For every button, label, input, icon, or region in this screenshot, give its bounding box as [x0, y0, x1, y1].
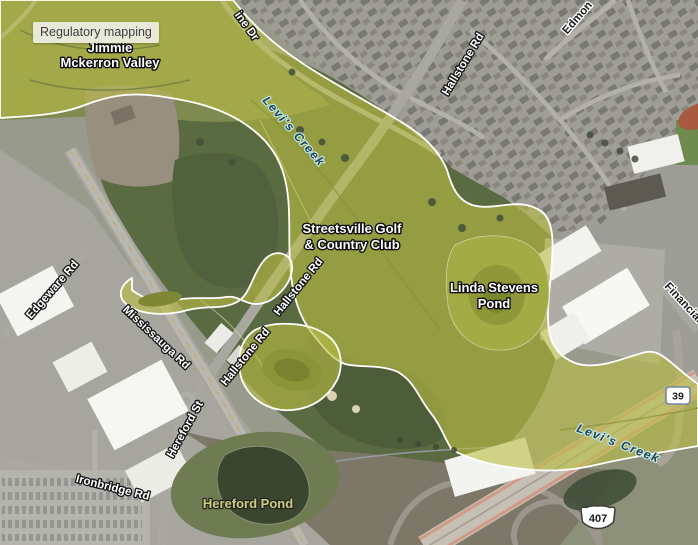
route-39-number: 39	[672, 391, 684, 403]
label-golf-club-line1: Streetsville Golf	[303, 221, 403, 236]
map-canvas[interactable]: Jimmie Mckerron Valley Streetsville Golf…	[0, 0, 698, 545]
satellite-map: Jimmie Mckerron Valley Streetsville Golf…	[0, 0, 698, 545]
regulatory-mapping-tooltip: Regulatory mapping	[33, 22, 159, 43]
route-shield-407: 407	[581, 506, 615, 529]
route-shield-39: 39	[666, 387, 690, 404]
label-hereford-pond: Hereford Pond	[203, 496, 293, 511]
label-golf-club-line2: & Country Club	[304, 237, 399, 252]
label-linda-stevens-line1: Linda Stevens	[450, 280, 538, 295]
label-linda-stevens-line2: Pond	[478, 296, 511, 311]
label-valley-line2: Mckerron Valley	[61, 55, 161, 70]
route-407-number: 407	[589, 513, 607, 525]
